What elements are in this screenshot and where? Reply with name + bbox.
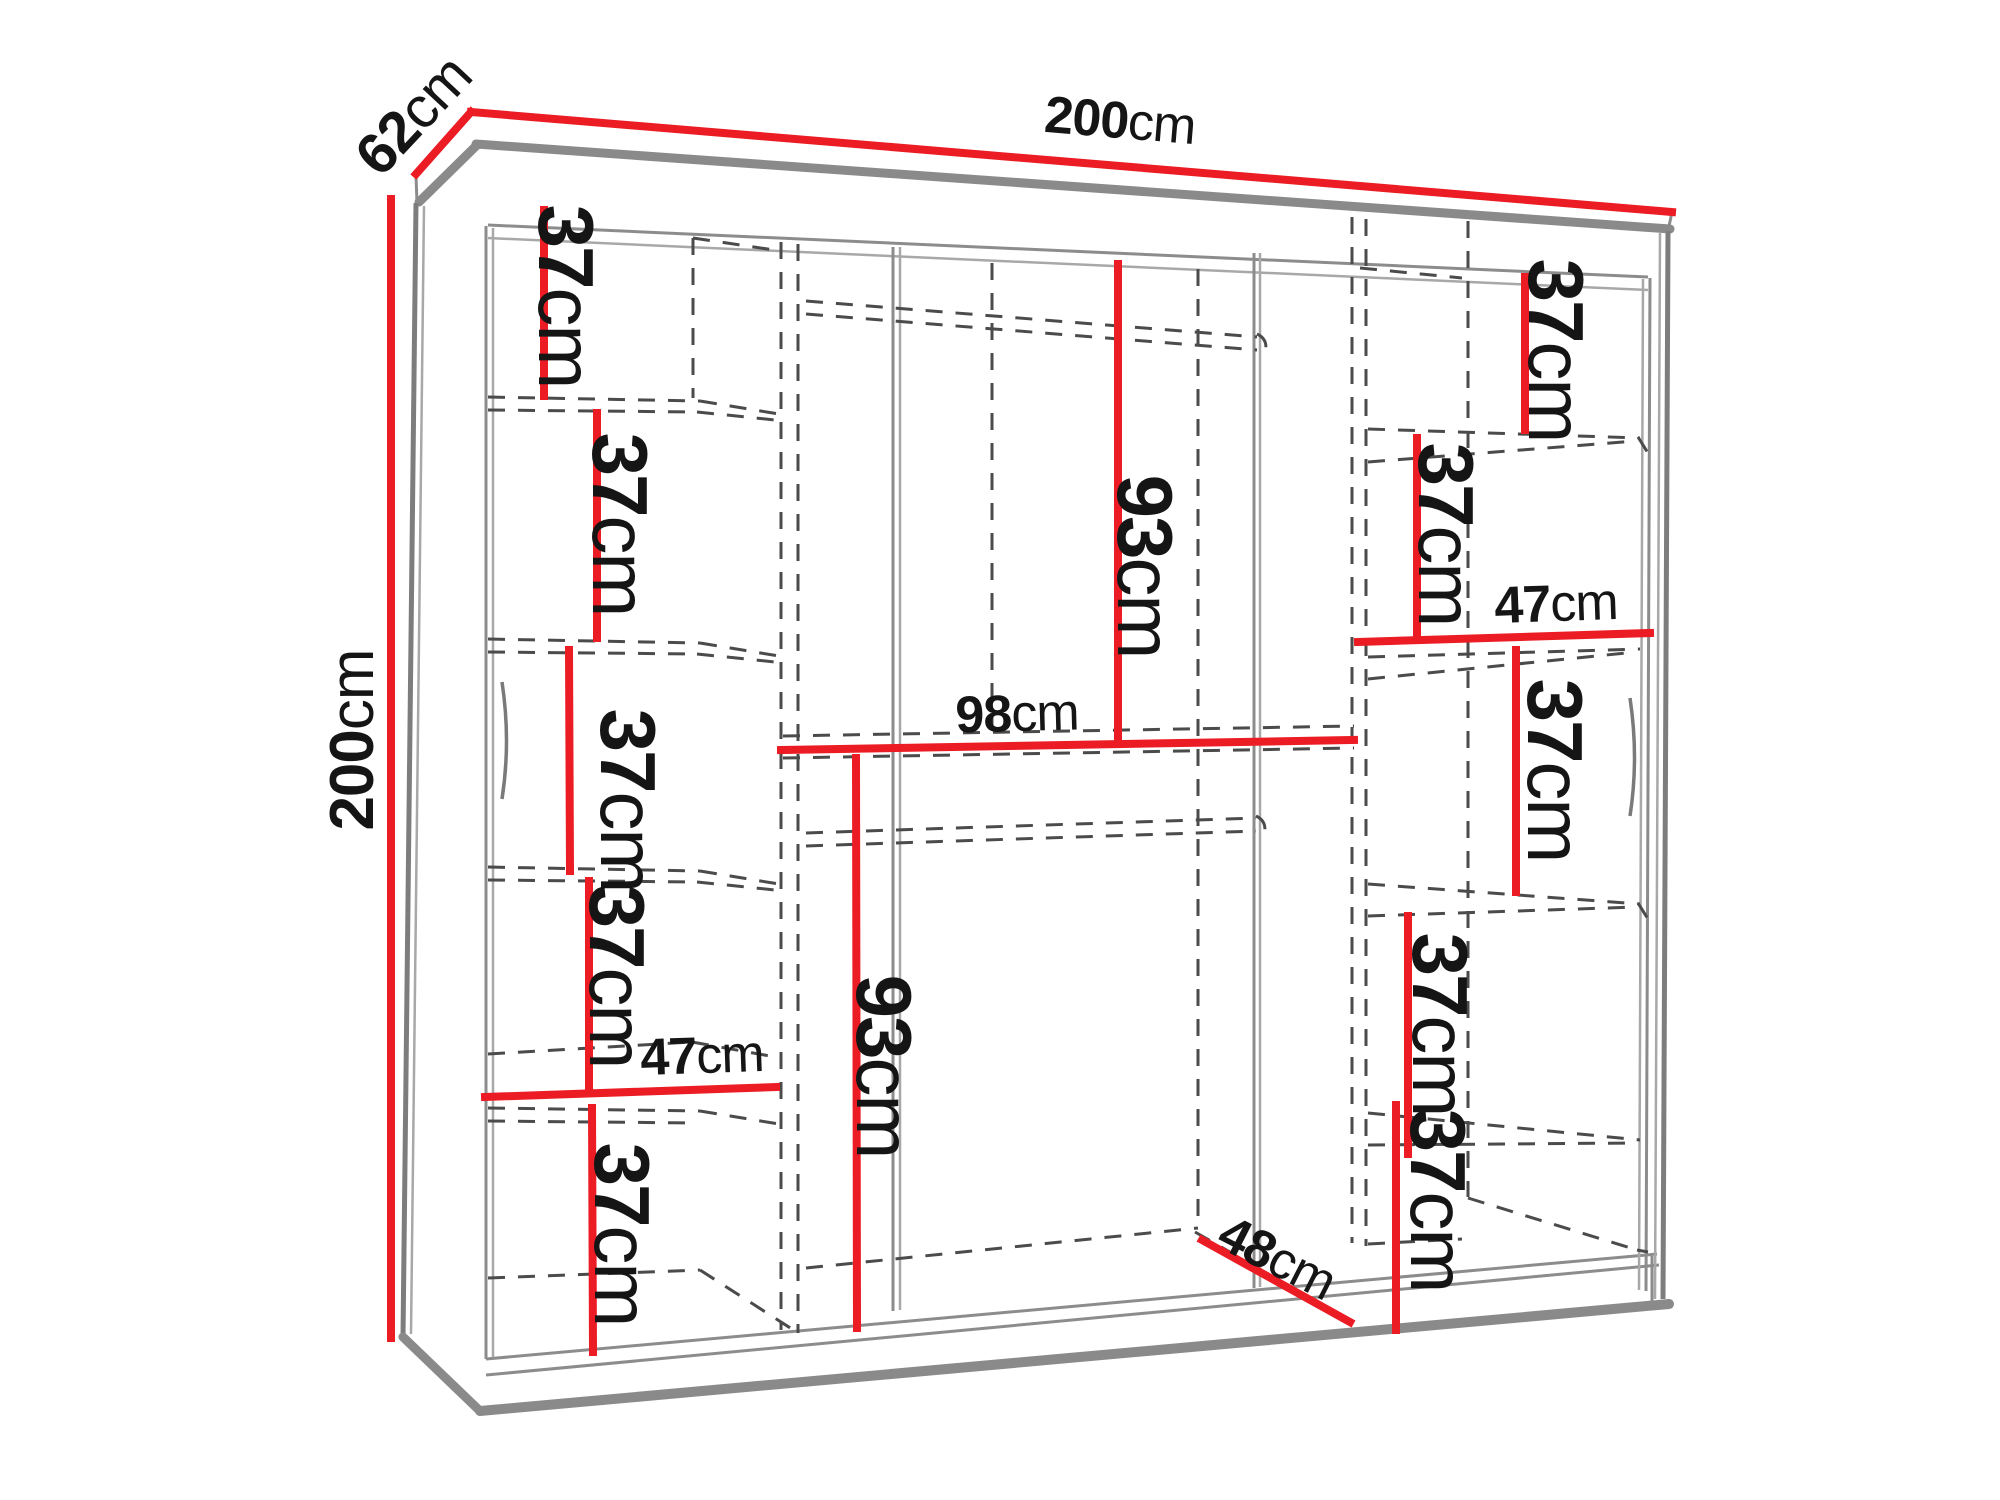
top-left-corner-edge xyxy=(419,145,477,202)
left-door-handle xyxy=(502,682,507,799)
dim-label-overall-width: 200cm xyxy=(1042,86,1197,156)
right-outer-edge-inner xyxy=(1655,233,1660,1299)
right-inner-frame-2 xyxy=(1639,279,1643,1290)
bottom-left-corner-edge xyxy=(403,1337,480,1411)
top-panel-front-edge xyxy=(476,144,1670,229)
dim-label-left-shelf-5: 37cm xyxy=(578,1143,666,1326)
shelf-dashed-line xyxy=(700,1111,785,1125)
dim-label-right-shelf-2: 37cm xyxy=(1402,443,1490,626)
dimension-labels: 200cm 62cm 200cm 37cm 37cm 37cm 37cm 47c… xyxy=(318,42,1619,1325)
shelf-dashed-line xyxy=(488,410,697,412)
diagram-canvas: 200cm 62cm 200cm 37cm 37cm 37cm 37cm 47c… xyxy=(0,0,2000,1500)
top-door-track-1 xyxy=(488,225,1648,277)
dim-label-left-shelf-3: 37cm xyxy=(584,709,672,892)
rail-end-bracket xyxy=(1257,334,1266,356)
right-compartment-top-diagonal xyxy=(1360,268,1462,278)
right-outer-edge xyxy=(1663,231,1668,1299)
dim-label-overall-height: 200cm xyxy=(318,649,387,830)
dim-label-right-shelf-5: 37cm xyxy=(1394,1109,1482,1292)
wardrobe-dimension-diagram: 200cm 62cm 200cm 37cm 37cm 37cm 37cm 47c… xyxy=(0,0,2000,1500)
dim-label-middle-lower-height: 93cm xyxy=(840,975,928,1158)
dim-label-right-column-width: 47cm xyxy=(1493,573,1618,635)
top-door-track-2 xyxy=(488,238,1648,290)
dim-label-left-shelf-2: 37cm xyxy=(576,433,664,616)
shelf-dashed-line xyxy=(488,397,700,401)
dim-label-middle-upper-height: 93cm xyxy=(1101,475,1189,658)
dim-label-overall-depth: 62cm xyxy=(342,42,484,187)
dim-line-left-column-width xyxy=(485,1087,776,1097)
dim-label-left-column-width: 47cm xyxy=(639,1025,764,1087)
dim-label-right-shelf-4: 37cm xyxy=(1396,933,1484,1116)
right-inner-frame xyxy=(1646,278,1650,1291)
lower-hanging-rail xyxy=(806,831,1256,846)
dim-label-middle-width: 98cm xyxy=(955,683,1080,744)
right-door-handle xyxy=(1630,698,1635,816)
floor-dashed-diagonal xyxy=(1468,1198,1637,1250)
shelf-dashed-line xyxy=(1368,884,1640,904)
shelf-dashed-line xyxy=(1368,649,1640,657)
dim-label-right-shelf-3: 37cm xyxy=(1511,679,1599,862)
shelf-dashed-line xyxy=(488,652,697,654)
top-left-corner-line xyxy=(416,176,417,203)
middle-hanging-section xyxy=(783,301,1354,1320)
lower-hanging-rail xyxy=(806,818,1256,833)
floor-dashed-line xyxy=(1637,1250,1648,1252)
dim-label-left-shelf-1: 37cm xyxy=(522,205,610,388)
dim-line-left-shelf-3 xyxy=(569,650,570,871)
dim-label-right-shelf-1: 37cm xyxy=(1512,259,1600,442)
dim-label-middle-floor-depth: 48cm xyxy=(1209,1204,1345,1312)
middle-floor-dashed xyxy=(806,1228,1198,1268)
